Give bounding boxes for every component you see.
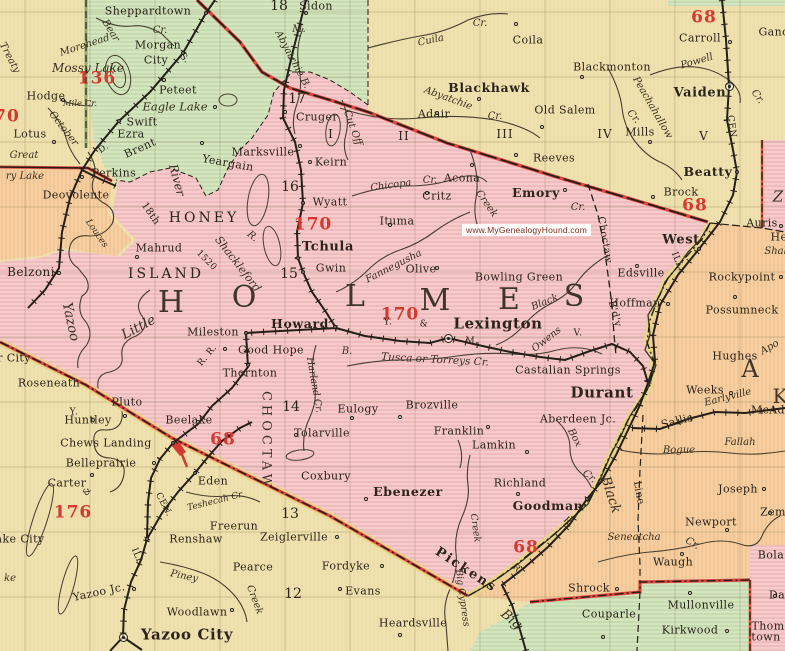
label-tolarville: Tolarville — [294, 428, 350, 439]
label-68: 68 — [513, 540, 539, 557]
label-eulogy: Eulogy — [338, 404, 379, 415]
label-sidon: Sidon — [299, 1, 333, 12]
label-mullonville: Mullonville — [668, 600, 735, 611]
label-adair: Adair — [418, 109, 450, 120]
label-lotus: Lotus — [13, 129, 46, 140]
label-rockypoint: Rockypoint — [709, 272, 776, 283]
label-h: H — [158, 288, 186, 318]
label-coila: Coila — [513, 35, 544, 46]
label-iv: IV — [597, 128, 612, 140]
label-good-hope: Good Hope — [238, 345, 304, 356]
label-68: 68 — [682, 198, 708, 215]
label-morgan: Morgan — [135, 40, 181, 51]
label-blackhawk: Blackhawk — [448, 82, 530, 95]
label-great: Great — [10, 151, 39, 161]
label-pearce: Pearce — [233, 562, 273, 573]
label-68: 68 — [691, 10, 717, 27]
label-sheppardtown: Sheppardtown — [105, 6, 191, 17]
label-carroll: Carroll — [679, 33, 721, 44]
label-old-salem: Old Salem — [534, 105, 595, 116]
label-zem: Zem — [760, 507, 785, 518]
label-68: 68 — [210, 432, 236, 449]
label-seneatcha: Seneatcha — [607, 533, 660, 543]
label-roseneath: Roseneath — [18, 378, 80, 389]
label-shak: Shak — [764, 247, 785, 257]
label-auris: Auris — [746, 218, 777, 229]
label-yazoo-city: Yazoo City — [141, 628, 233, 643]
label-couparle: Couparle — [582, 609, 636, 620]
label-i: I — [328, 128, 334, 140]
label-ii: II — [398, 130, 409, 142]
label-m: M. — [292, 25, 305, 35]
label-17: 17 — [288, 92, 306, 106]
label-cr: Cr. — [473, 19, 488, 29]
label-beatty: Beatty — [683, 166, 732, 179]
label-blackmonton: Blackmonton — [573, 62, 651, 73]
label-o: O — [232, 283, 259, 313]
label-s: S — [564, 282, 587, 312]
county-map: SheppardtownMorganCityPeteetEagle LakeMo… — [0, 0, 785, 651]
label-mark: & — [420, 321, 429, 330]
label-bowling-green: Bowling Green — [475, 272, 563, 283]
label-freerun: Freerun — [210, 521, 258, 532]
label-176: 176 — [54, 505, 93, 522]
label-howard: Howard — [271, 318, 329, 331]
label-newport: Newport — [685, 517, 737, 528]
label-136: 136 — [78, 71, 117, 88]
label-tchula: Tchula — [302, 241, 354, 254]
label-joseph: Joseph — [718, 484, 758, 495]
label-choctaw: CHOCTAW — [260, 391, 273, 491]
label-z: Z — [773, 190, 783, 205]
label-beelake: Beelake — [165, 415, 212, 426]
label-honey: HONEY — [169, 211, 239, 225]
label-franklin: Franklin — [434, 426, 485, 437]
label-castalian-springs: Castalian Springs — [515, 365, 621, 376]
label-belzoni: Belzoni — [7, 266, 55, 278]
label-perkins: Perkins — [92, 168, 136, 179]
label-aberdeen-jc: Aberdeen Jc. — [540, 414, 616, 425]
label-r-city: r City — [0, 353, 31, 364]
label-15: 15 — [280, 267, 298, 281]
label-emory: Emory — [512, 187, 560, 200]
label-fallah: Fallah — [724, 438, 755, 448]
label-vaiden: Vaiden — [674, 87, 727, 100]
label-goodman: Goodman — [513, 500, 584, 513]
label-gand: Gand — [758, 27, 785, 38]
label-mills: Mills — [625, 127, 654, 138]
label-e: E — [498, 285, 522, 315]
label-richland: Richland — [494, 478, 546, 489]
label-bogue: Bogue — [663, 446, 695, 456]
label-brozville: Brozville — [406, 400, 459, 411]
label-possumneck: Possumneck — [706, 305, 779, 316]
label-l: L — [345, 282, 367, 312]
region-top-right-green-strip — [668, 0, 785, 6]
label-v: V — [699, 130, 709, 142]
label-ebenezer: Ebenezer — [373, 486, 443, 499]
label-chews-landing: Chews Landing — [60, 438, 151, 449]
label-hodge: Hodge — [27, 91, 66, 102]
label-a: A — [741, 357, 760, 381]
station-marker — [444, 334, 453, 343]
label-cr: Cr. — [488, 112, 503, 122]
label-west: West — [662, 234, 700, 247]
label-lamkin: Lamkin — [472, 440, 516, 451]
label-b: B. — [342, 347, 353, 357]
label-70: 70 — [0, 109, 20, 126]
label-reeves: Reeves — [533, 153, 575, 164]
label-iii: III — [496, 128, 513, 140]
label-mile-cr: Mile Cr. — [63, 100, 97, 109]
label-town: town — [751, 632, 780, 643]
label-evans: Evans — [345, 586, 381, 597]
label-acona: Acona — [444, 173, 480, 184]
label-cr: Cr. — [571, 203, 586, 213]
label-gwin: Gwin — [316, 263, 346, 274]
label-cr: Cr. — [423, 176, 438, 186]
label-16: 16 — [281, 180, 299, 194]
label-bola: Bola — [758, 550, 784, 561]
label-lexington: Lexington — [453, 317, 542, 332]
label-pluto: Pluto — [111, 397, 142, 408]
label-y: Y. — [70, 409, 79, 418]
label-mcad: McAd — [751, 405, 785, 416]
label-carter: Carter — [48, 478, 87, 489]
label-14: 14 — [282, 400, 300, 414]
label-13: 13 — [281, 507, 299, 521]
label-ezra: Ezra — [117, 129, 144, 140]
label-edsville: Edsville — [617, 268, 664, 279]
label-ituma: Ituma — [380, 216, 415, 227]
station-marker — [119, 633, 128, 642]
label-waugh: Waugh — [653, 557, 693, 568]
label-olive: Olive — [406, 264, 437, 275]
label-ry-lake: ry Lake — [6, 172, 44, 182]
label-mileston: Mileston — [187, 327, 239, 338]
station-marker — [725, 82, 734, 91]
label-durant: Durant — [571, 386, 634, 401]
label-he: He — [771, 232, 785, 243]
label-belleprairie: Belleprairie — [66, 458, 137, 469]
label-heardsville: Heardsville — [379, 618, 447, 629]
label-eden: Eden — [198, 476, 228, 487]
label-m: M. — [465, 338, 478, 347]
label-coxbury: Coxbury — [301, 471, 351, 482]
label-marksville: Marksville — [232, 147, 295, 158]
label-swift: Swift — [127, 117, 158, 128]
label-woodlawn: Woodlawn — [167, 607, 228, 618]
label-mahrud: Mahrud — [136, 243, 183, 254]
label-cr: Cr. — [153, 26, 168, 36]
label-eagle-lake: Eagle Lake — [142, 101, 207, 113]
label-y: Y. — [384, 319, 393, 328]
label-shrock: Shrock — [568, 583, 610, 594]
label-wyatt: Wyatt — [313, 197, 348, 208]
label-thornton: Thornton — [223, 368, 278, 379]
label-ke: ke — [4, 574, 16, 584]
label-keirn: Keirn — [315, 157, 347, 168]
label-m: M — [420, 286, 453, 316]
label-18: 18 — [270, 0, 288, 13]
label-renshaw: Renshaw — [169, 534, 222, 545]
label-hoffman: Hoffman — [609, 298, 660, 309]
label-v: V. — [574, 330, 583, 339]
label-cruger: Cruger — [296, 112, 338, 123]
label-city: City — [144, 55, 168, 66]
label-zeiglerville: Zeiglerville — [260, 532, 328, 543]
label-fordyke: Fordyke — [322, 561, 370, 572]
label-peteet: Peteet — [159, 85, 197, 96]
label-deovolente: Deovolente — [43, 190, 110, 201]
label-170: 170 — [294, 217, 333, 234]
label-12: 12 — [284, 587, 302, 601]
label-kirkwood: Kirkwood — [662, 625, 719, 636]
label-ake-city: ake City — [0, 534, 45, 545]
watermark: www.MyGenealogyHound.com — [462, 224, 591, 236]
label-island: ISLAND — [128, 267, 204, 281]
